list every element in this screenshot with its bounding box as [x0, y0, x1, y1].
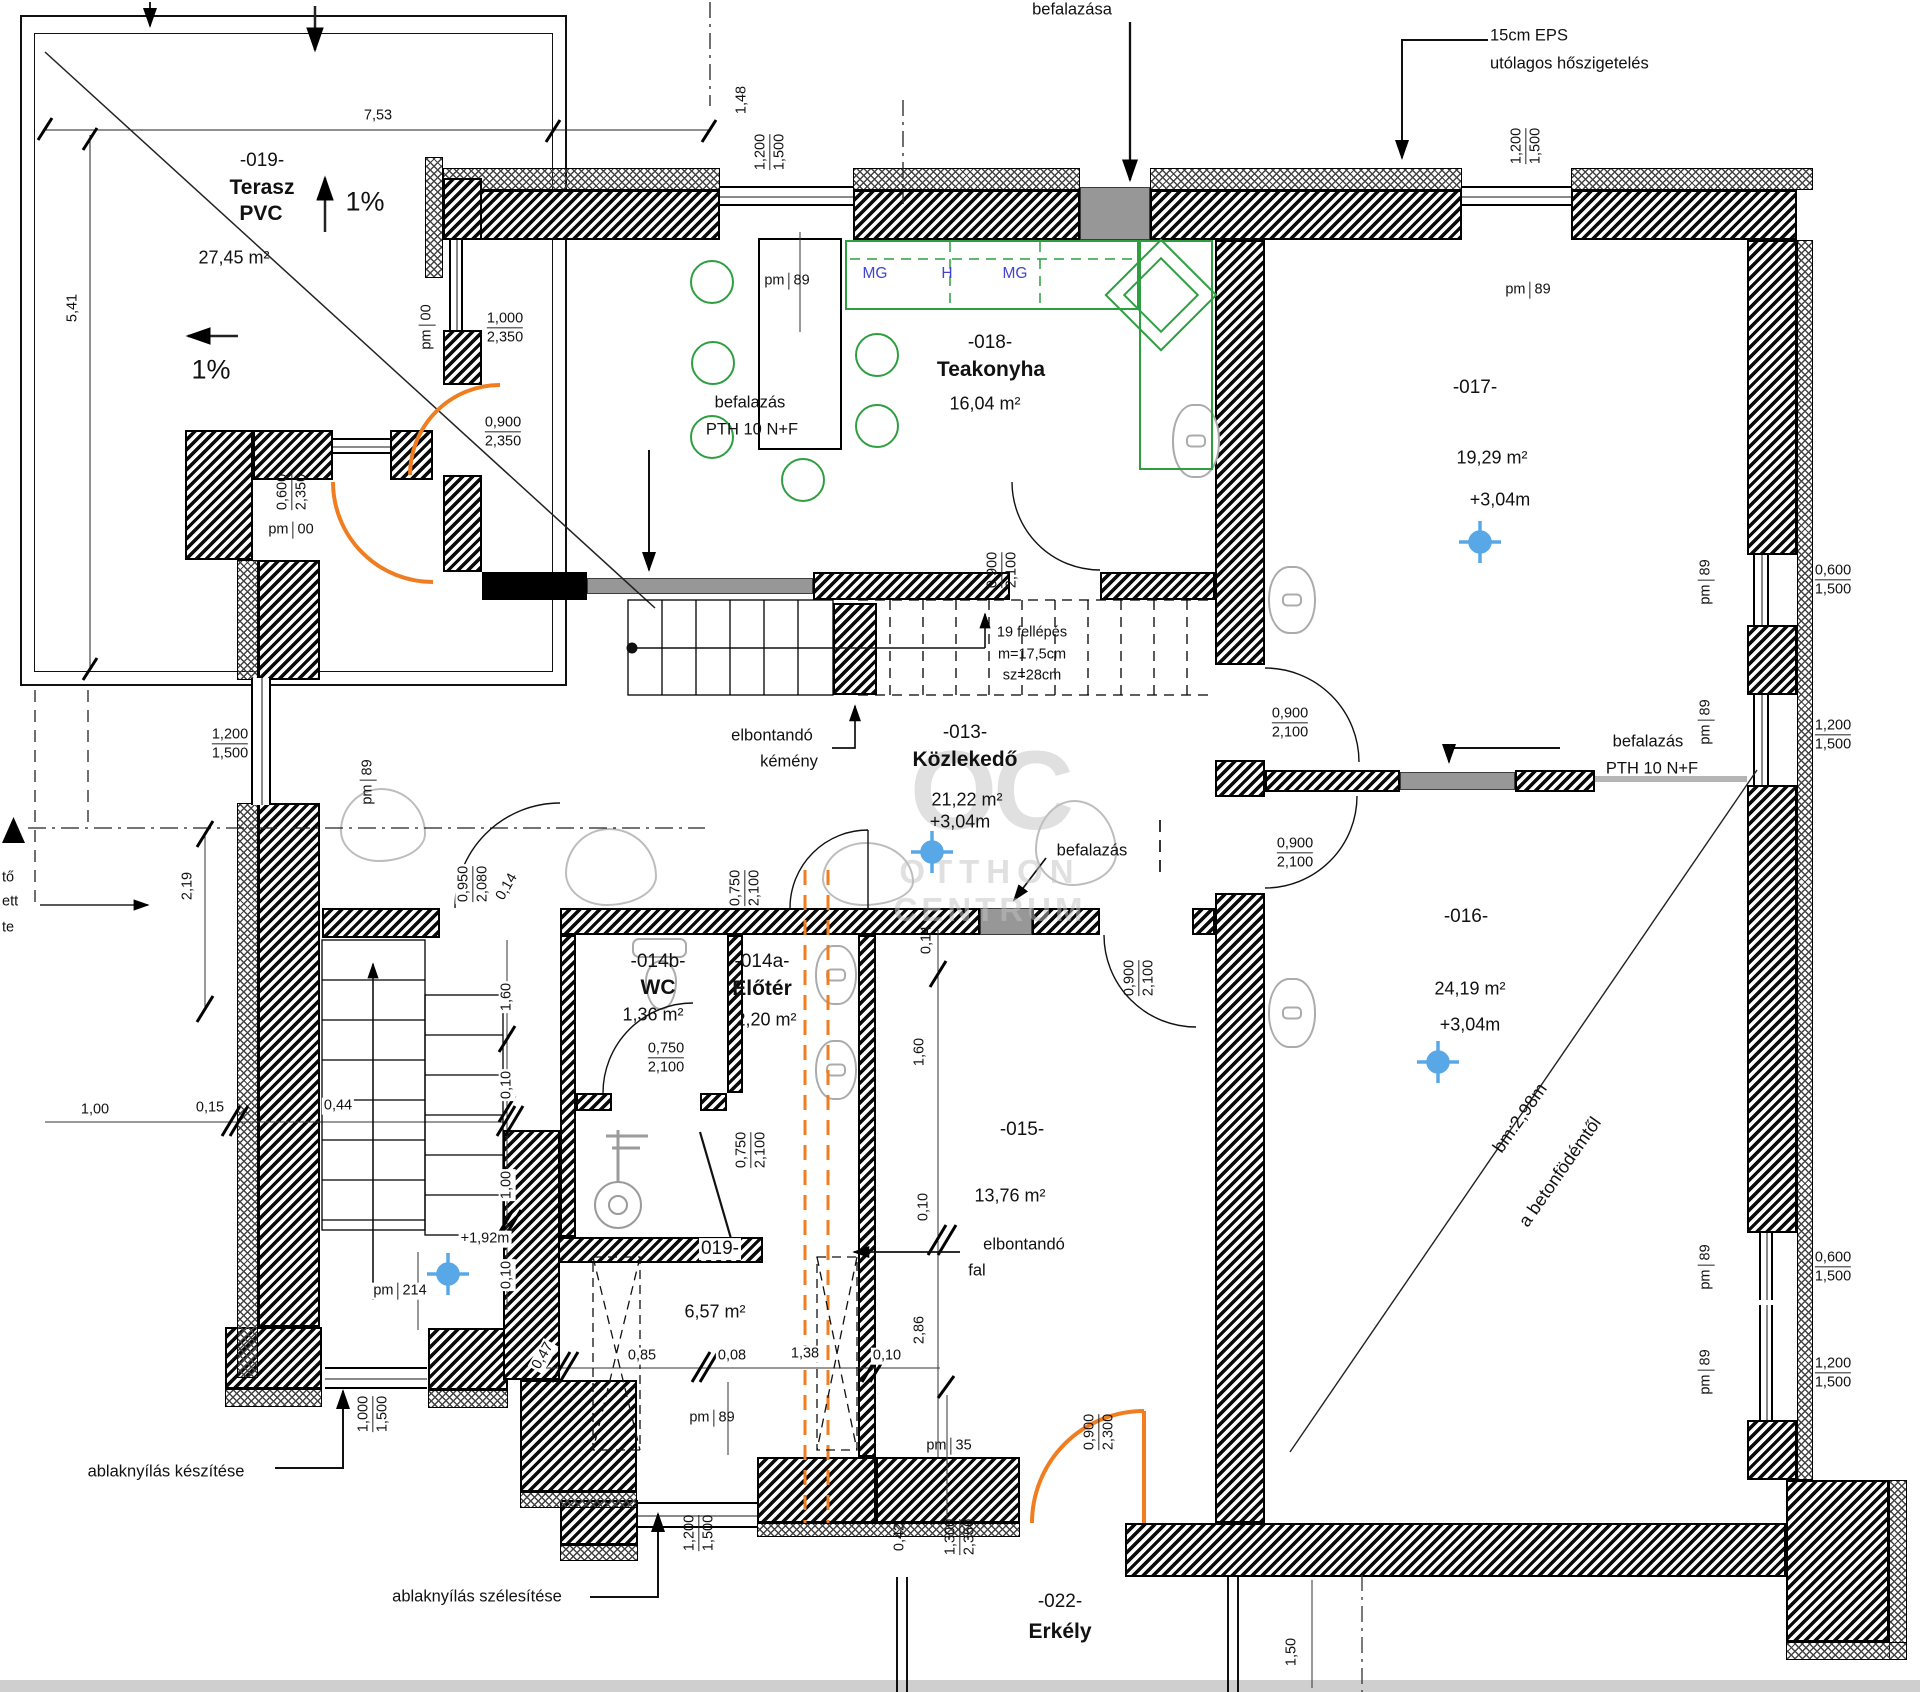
dim-label: 7,53 — [364, 108, 392, 125]
note-kemeny: kémény — [760, 753, 818, 772]
room-area: 27,45 m² — [198, 248, 269, 269]
slope-label: 1% — [345, 186, 384, 217]
stair-note: 19 fellépés — [997, 625, 1067, 642]
room-area: 13,76 m² — [974, 1186, 1045, 1207]
dim-pair: 0,9002,100 — [984, 552, 1019, 588]
dim-pair: 0,9502,080 — [455, 864, 490, 904]
appliance-label: H — [941, 265, 952, 283]
level-label: +1,92m — [459, 1231, 512, 1248]
dim-label: 0,10 — [916, 1193, 933, 1221]
kitchen-counter — [845, 240, 1139, 310]
appliance-label: MG — [1003, 265, 1028, 283]
dim-pair: 0,7502,100 — [646, 1040, 686, 1075]
dim-pair: 0,9002,100 — [1272, 705, 1308, 740]
note-befalazas: befalazás — [715, 394, 786, 413]
room-id: -014a- — [735, 951, 790, 973]
room-name: WC — [641, 976, 676, 1000]
room-name: Előtér — [732, 977, 792, 1001]
room-area: 21,22 m² — [931, 790, 1002, 811]
room-level: +3,04m — [930, 812, 991, 833]
dim-pair: 1,2001,500 — [681, 1515, 716, 1551]
note-eps: utólagos hőszigetelés — [1490, 55, 1649, 74]
stair-note: sz=28cm — [1003, 668, 1061, 685]
dim-pair: 1,2001,500 — [212, 726, 248, 761]
dim-label: 0,15 — [194, 1100, 226, 1117]
parapet-label: pm89 — [1698, 559, 1715, 604]
dim-label: 2,19 — [180, 872, 197, 900]
dim-label: 1,00 — [499, 1169, 516, 1201]
dim-label: 0,10 — [499, 1069, 516, 1101]
room-name: PVC — [239, 202, 282, 226]
dim-label: 0,10 — [871, 1348, 903, 1365]
floor-plan: -019- Terasz PVC 27,45 m² 1% 1% 7,53 5,4… — [0, 0, 1920, 1692]
level-target-icon — [1457, 519, 1503, 565]
dim-label: 0,08 — [716, 1348, 748, 1365]
note-befalazasa: befalazása — [1032, 1, 1112, 20]
dim-pair: 0,6002,350 — [274, 474, 309, 510]
room-name: Teakonyha — [937, 358, 1045, 382]
chair-icon — [855, 404, 899, 448]
room-name: Közlekedő — [912, 748, 1017, 772]
dim-label: 1,48 — [734, 86, 751, 114]
level-target-icon — [425, 1251, 471, 1297]
note-eps: 15cm EPS — [1490, 27, 1568, 46]
room-id: -015- — [1000, 1119, 1044, 1141]
dim-pair: 1,0001,500 — [355, 1396, 390, 1432]
level-target-icon — [1415, 1039, 1461, 1085]
room-level: +3,04m — [1440, 1015, 1501, 1036]
dim-pair: 0,9002,100 — [1121, 960, 1156, 996]
dim-label: 1,60 — [912, 1038, 929, 1066]
parapet-label: pm00 — [268, 522, 313, 539]
text-fragment: te — [2, 920, 14, 937]
room-area: 16,04 m² — [949, 394, 1020, 415]
note-befalazas: befalazás — [1057, 842, 1128, 861]
dim-pair: 0,6001,500 — [1815, 1249, 1851, 1284]
chair-icon — [781, 458, 825, 502]
text-fragment: ett — [2, 894, 18, 911]
dim-pair: 1,0002,350 — [487, 310, 523, 345]
note-ablak: ablaknyílás készítése — [88, 1463, 245, 1482]
room-id: -016- — [1444, 906, 1488, 928]
slope-label: 1% — [191, 354, 230, 385]
note-elbontando-fal: fal — [968, 1262, 985, 1281]
note-pth: PTH 10 N+F — [706, 421, 798, 440]
dim-pair: 1,2001,500 — [1815, 717, 1851, 752]
dim-label: 1,60 — [499, 981, 516, 1013]
dim-label: 1,38 — [789, 1346, 821, 1363]
appliance-label: MG — [863, 265, 888, 283]
dim-label: 2,86 — [912, 1316, 929, 1344]
room-id: -022- — [1038, 1591, 1082, 1613]
parapet-label: pm89 — [764, 273, 809, 290]
parapet-label: pm89 — [1698, 1349, 1715, 1394]
dim-pair: 1,3002,350 — [942, 1519, 977, 1555]
note-befalazas: befalazás — [1613, 733, 1684, 752]
note-elbontando-fal: elbontandó — [983, 1236, 1065, 1255]
dim-pair: 0,9002,100 — [1277, 835, 1313, 870]
parapet-label: pm89 — [360, 759, 377, 804]
dim-pair: 0,7502,100 — [733, 1132, 768, 1168]
dim-pair: 0,9002,350 — [485, 414, 521, 449]
dim-label: 5,41 — [65, 294, 82, 322]
parapet-label: pm214 — [371, 1283, 428, 1300]
note-pth: PTH 10 N+F — [1606, 760, 1698, 779]
room-area: 24,19 m² — [1434, 979, 1505, 1000]
dim-label: 0,10 — [499, 1259, 516, 1291]
room-id: -017- — [1453, 377, 1497, 399]
stair-note: m=17,5cm — [998, 647, 1066, 664]
chair-icon — [855, 333, 899, 377]
dim-pair: 0,7502,100 — [727, 870, 762, 906]
room-area: 19,29 m² — [1456, 448, 1527, 469]
dim-pair: 1,2001,500 — [752, 134, 787, 170]
room-area: 2,20 m² — [735, 1010, 796, 1031]
dim-pair: 0,9002,300 — [1081, 1414, 1116, 1450]
dim-label: 0,85 — [626, 1348, 658, 1365]
room-level: +3,04m — [1470, 490, 1531, 511]
level-target-icon — [909, 829, 955, 875]
room-area: 6,57 m² — [684, 1302, 745, 1323]
parapet-label: pm35 — [926, 1438, 971, 1455]
dim-pair: 0,6001,500 — [1815, 562, 1851, 597]
room-id: -019- — [240, 150, 284, 172]
dim-label: 0,44 — [322, 1098, 354, 1115]
section-marker-icon — [2, 817, 25, 843]
parapet-label: pm00 — [419, 304, 436, 349]
room-name: Erkély — [1028, 1620, 1091, 1644]
parapet-label: pm89 — [1505, 282, 1550, 299]
dim-label: 1,00 — [81, 1102, 109, 1119]
floor-drain-icon — [595, 1130, 648, 1228]
note-ablak: ablaknyílás szélesítése — [392, 1588, 562, 1607]
dim-label: 0,42 — [892, 1523, 909, 1551]
parapet-label: pm89 — [1698, 1244, 1715, 1289]
dim-pair: 1,2001,500 — [1508, 128, 1543, 164]
chair-icon — [691, 341, 735, 385]
parapet-label: pm89 — [1698, 699, 1715, 744]
room-name: Terasz — [230, 176, 295, 200]
room-id: 019- — [699, 1238, 741, 1260]
dim-label: 1,50 — [1284, 1638, 1301, 1666]
room-id: -014b- — [631, 951, 686, 973]
door-swing-arcs — [455, 482, 1359, 1242]
parapet-label: pm89 — [689, 1410, 734, 1427]
room-id: -013- — [943, 722, 987, 744]
room-id: -018- — [968, 332, 1012, 354]
dim-label: 0,14 — [919, 926, 936, 954]
room-area: 1,36 m² — [622, 1005, 683, 1026]
dim-pair: 1,2001,500 — [1815, 1355, 1851, 1390]
text-fragment: tő — [2, 870, 14, 887]
note-kemeny: elbontandó — [731, 727, 813, 746]
chair-icon — [690, 260, 734, 304]
